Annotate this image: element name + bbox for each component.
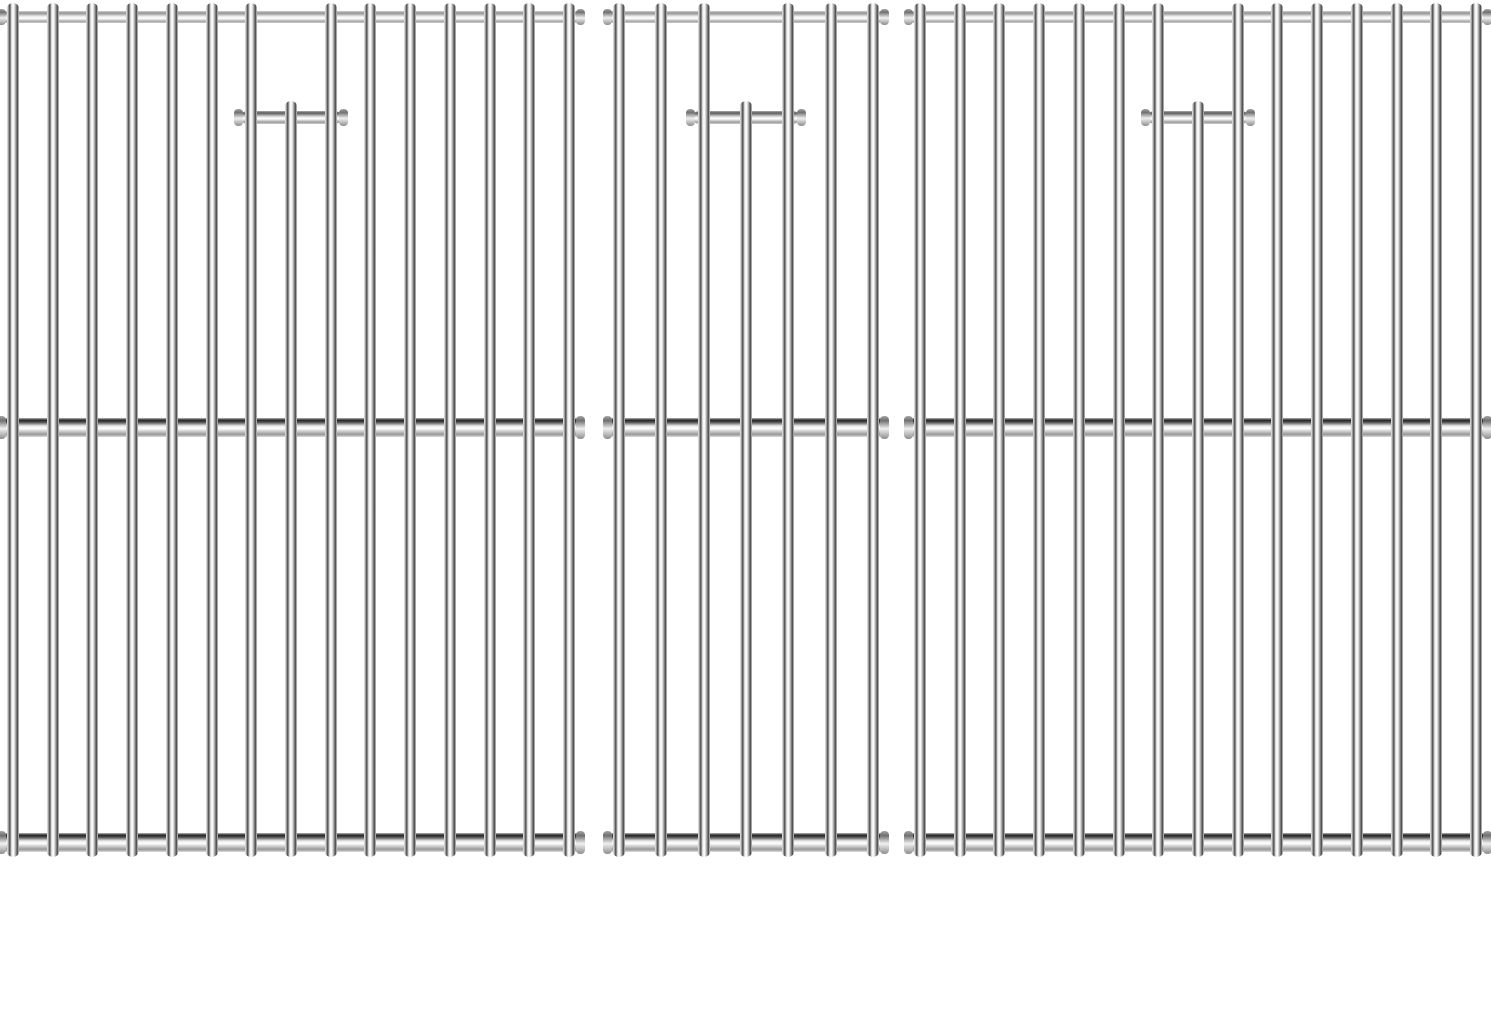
middle-rail-right-end-cap — [576, 416, 585, 439]
grate-rod — [1311, 3, 1323, 857]
grate-rod — [47, 3, 59, 857]
grill-grate-left — [7, 0, 575, 858]
grill-grate-right — [914, 0, 1482, 858]
hanger-left-end-cap — [686, 109, 695, 126]
grate-rod — [825, 3, 837, 857]
middle-rail-left-end-cap — [904, 416, 913, 439]
middle-rail-left-end-cap — [603, 416, 612, 439]
grate-rod — [404, 3, 416, 857]
grate-rod — [245, 3, 257, 857]
grate-rod — [613, 3, 625, 857]
grate-rod — [364, 3, 376, 857]
grate-rod — [325, 3, 337, 857]
grate-rod — [7, 3, 19, 857]
top-rail-right-end-cap — [1483, 9, 1491, 25]
grate-rod — [1351, 3, 1363, 857]
hanger-right-end-cap — [339, 109, 348, 126]
product-photo-stage — [0, 0, 1491, 1025]
middle-rail-left-end-cap — [0, 416, 6, 439]
grate-rod — [698, 3, 710, 857]
middle-rail-right-end-cap — [880, 416, 889, 439]
top-rail-left-end-cap — [0, 9, 6, 25]
grate-rod — [166, 3, 178, 857]
grate-rod — [1113, 3, 1125, 857]
grate-rod — [126, 3, 138, 857]
grate-rod — [563, 3, 575, 857]
bottom-rail-right-end-cap — [576, 831, 585, 854]
top-rail-left-end-cap — [904, 9, 913, 25]
hanger-left-end-cap — [234, 109, 243, 126]
top-rail-right-end-cap — [880, 9, 889, 25]
grate-rod — [484, 3, 496, 857]
grate-rod — [1391, 3, 1403, 857]
middle-rail-right-end-cap — [1483, 416, 1491, 439]
grate-rod — [1232, 3, 1244, 857]
top-rail-left-end-cap — [603, 9, 612, 25]
grate-rod — [867, 3, 879, 857]
grate-rod — [206, 3, 218, 857]
grate-rod — [1033, 3, 1045, 857]
grate-rod — [954, 3, 966, 857]
short-grate-rod — [1192, 101, 1204, 857]
bottom-rail-left-end-cap — [904, 831, 913, 854]
bottom-rail-right-end-cap — [1483, 831, 1491, 854]
grate-rod — [1152, 3, 1164, 857]
bottom-rail-right-end-cap — [880, 831, 889, 854]
grate-rod — [914, 3, 926, 857]
grate-rod — [444, 3, 456, 857]
grill-grate-middle — [613, 0, 879, 858]
grate-rod — [1271, 3, 1283, 857]
grates-scene — [0, 0, 1491, 858]
grate-rod — [782, 3, 794, 857]
grate-rod — [655, 3, 667, 857]
grate-rod — [1430, 3, 1442, 857]
top-rail-rod — [605, 11, 887, 23]
top-rail-right-end-cap — [576, 9, 585, 25]
grate-rod — [993, 3, 1005, 857]
grate-rod — [1470, 3, 1482, 857]
hanger-right-end-cap — [797, 109, 806, 126]
grate-rod — [86, 3, 98, 857]
grate-rod — [523, 3, 535, 857]
short-grate-rod — [285, 101, 297, 857]
bottom-rail-left-end-cap — [0, 831, 6, 854]
short-grate-rod — [740, 101, 752, 857]
grate-rod — [1073, 3, 1085, 857]
hanger-right-end-cap — [1246, 109, 1255, 126]
bottom-rail-left-end-cap — [603, 831, 612, 854]
floor-reflection — [0, 859, 1491, 1025]
hanger-left-end-cap — [1141, 109, 1150, 126]
